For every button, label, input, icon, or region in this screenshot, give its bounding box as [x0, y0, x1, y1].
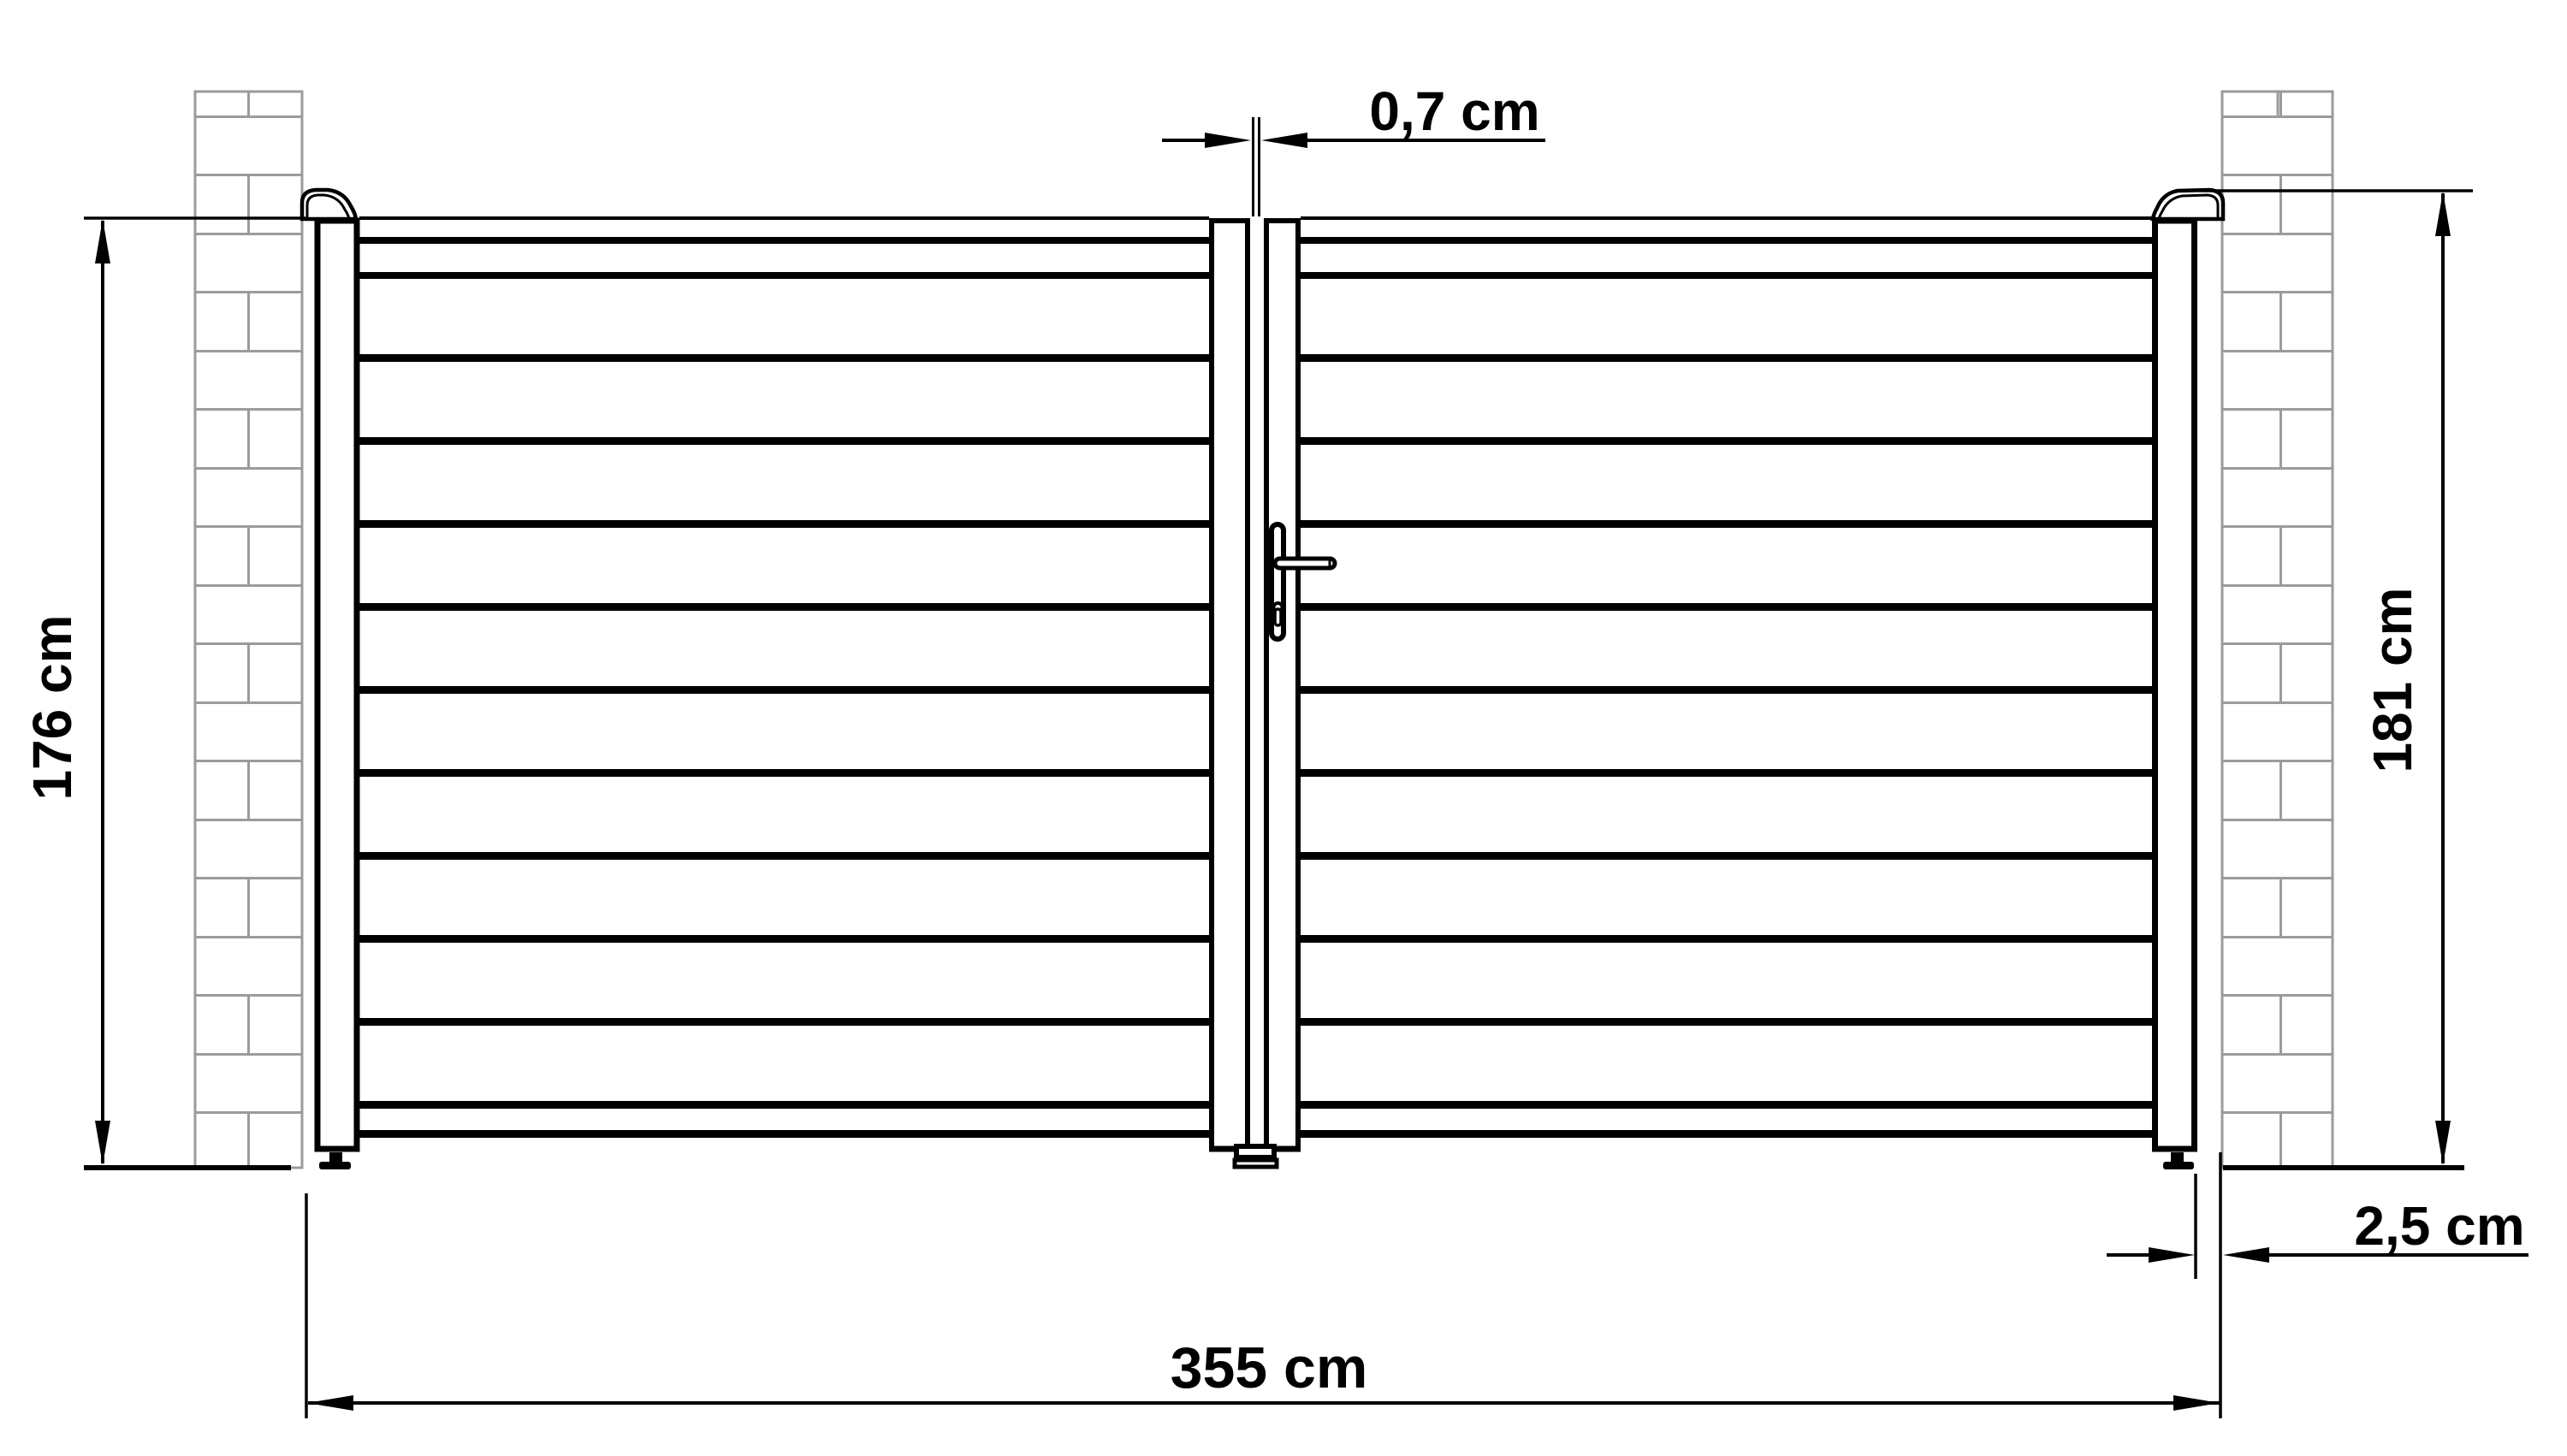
left-leaf-slat-bands — [359, 354, 1209, 1112]
right-post-foot-plate — [2163, 1162, 2194, 1169]
right-pillar-body — [2222, 92, 2333, 1168]
left-post-body — [317, 221, 357, 1149]
left-leaf-band-2 — [359, 272, 1209, 279]
handle-lever — [1275, 559, 1335, 568]
left-post-foot-plate — [319, 1162, 351, 1169]
dimension-label-center-gap: 0,7 cm — [1369, 80, 1539, 142]
center-stile-right — [1266, 221, 1298, 1149]
center-foot-lower-plate — [1235, 1160, 1277, 1167]
right-post-foot-stem — [2171, 1152, 2184, 1163]
dimension-label-height-right: 181 cm — [2362, 587, 2423, 772]
dimension-label-height-left: 176 cm — [21, 614, 83, 800]
center-stile-left — [1212, 221, 1248, 1149]
left-post-foot-stem — [329, 1152, 342, 1163]
right-leaf-bottom-edge — [1301, 1130, 2152, 1138]
right-leaf-band-1 — [1301, 237, 2152, 244]
left-leaf-band-1 — [359, 237, 1209, 244]
right-post-body — [2155, 221, 2195, 1149]
right-brick-pillar — [2222, 92, 2333, 1168]
center-foot-upper-block — [1236, 1146, 1274, 1157]
left-gate-leaf — [359, 216, 1209, 1138]
dimension-label-total-width: 355 cm — [1171, 1335, 1368, 1400]
left-leaf-bottom-edge — [359, 1130, 1209, 1138]
keyhole-slot — [1275, 609, 1281, 625]
left-pillar-body — [195, 92, 302, 1168]
right-leaf-slat-bands — [1301, 354, 2152, 1112]
right-leaf-band-2 — [1301, 272, 2152, 279]
dimension-label-side-clearance: 2,5 cm — [2354, 1195, 2524, 1257]
right-gate-leaf — [1301, 216, 2152, 1138]
gate-technical-drawing: 0,7 cm 176 cm 181 cm 355 cm 2,5 cm — [0, 0, 2567, 1456]
left-brick-pillar — [195, 92, 302, 1168]
gate-technical-drawing-page: 0,7 cm 176 cm 181 cm 355 cm 2,5 cm — [0, 0, 2567, 1456]
